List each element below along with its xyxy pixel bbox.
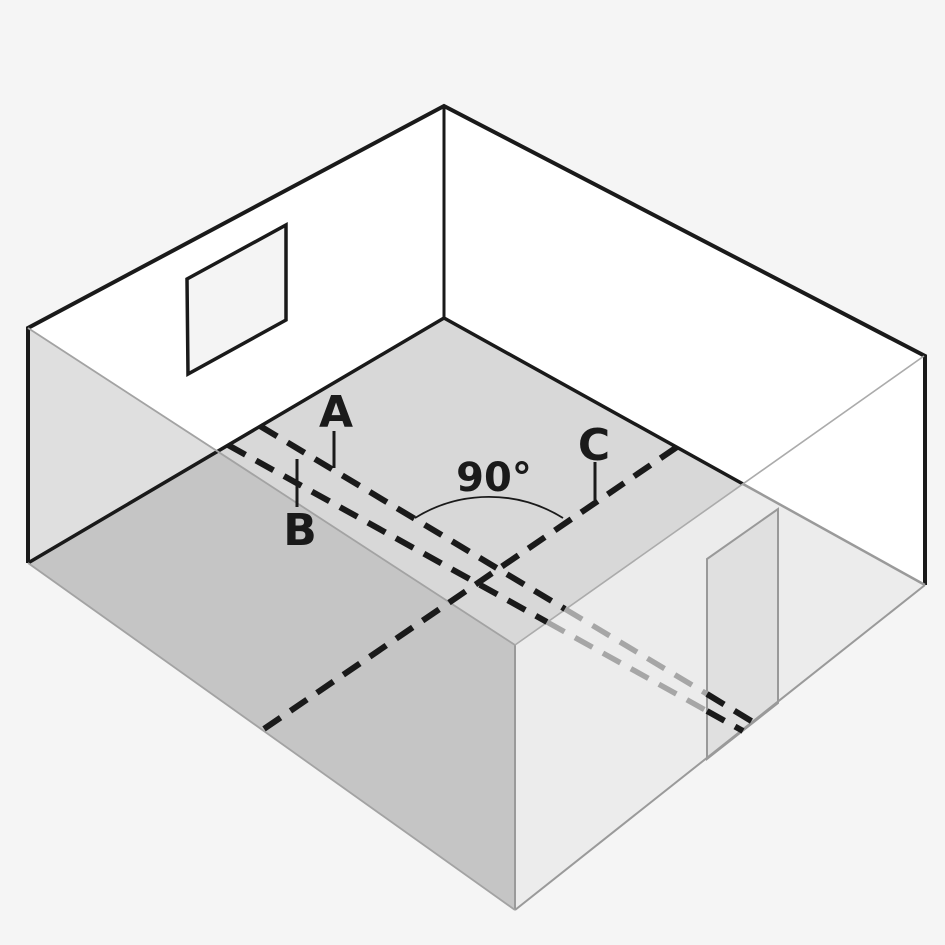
- room-diagram-figure: 90° A B C: [0, 0, 945, 945]
- ray-b-label: B: [283, 505, 317, 556]
- room-diagram-canvas: 90° A B C: [0, 0, 945, 945]
- ray-c-label: C: [578, 420, 610, 471]
- angle-value-label: 90°: [456, 455, 532, 501]
- ray-a-label: A: [319, 387, 353, 438]
